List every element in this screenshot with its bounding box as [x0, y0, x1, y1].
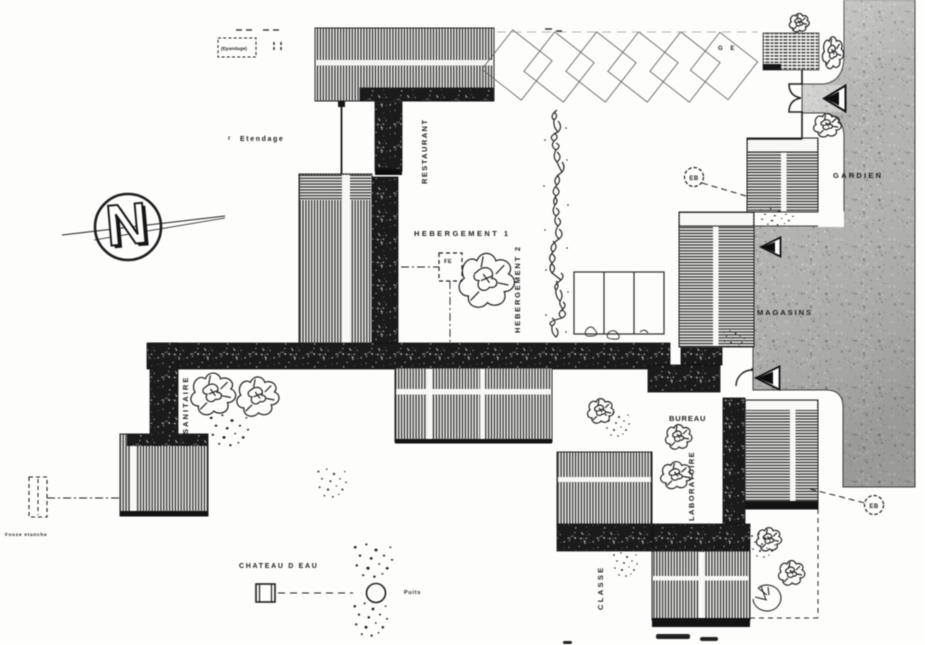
svg-text:Fosse etanche: Fosse etanche	[5, 532, 47, 538]
svg-text:GARDIEN: GARDIEN	[833, 171, 883, 180]
svg-text:MAGASINS: MAGASINS	[757, 308, 813, 317]
svg-text:G E: G E	[718, 46, 737, 52]
svg-text:CHATEAU D EAU: CHATEAU D EAU	[239, 563, 319, 570]
svg-text:CLASSE: CLASSE	[596, 566, 605, 610]
svg-text:EB: EB	[869, 504, 879, 510]
svg-text:N: N	[103, 190, 150, 258]
svg-text:EB: EB	[689, 176, 699, 182]
svg-text:RESTAURANT: RESTAURANT	[420, 118, 429, 184]
svg-text:Etendage: Etendage	[240, 136, 284, 143]
svg-text:FE: FE	[444, 259, 452, 265]
svg-text:HEBERGEMENT 2: HEBERGEMENT 2	[513, 245, 522, 333]
svg-text:HEBERGEMENT 1: HEBERGEMENT 1	[414, 229, 510, 238]
svg-text:SANITAIRE: SANITAIRE	[181, 376, 190, 434]
svg-text:(Epandage): (Epandage)	[221, 46, 247, 51]
svg-text:Puits: Puits	[404, 590, 421, 596]
svg-text:LABORATOIRE: LABORATOIRE	[687, 451, 696, 521]
svg-text:BUREAU: BUREAU	[669, 414, 707, 423]
